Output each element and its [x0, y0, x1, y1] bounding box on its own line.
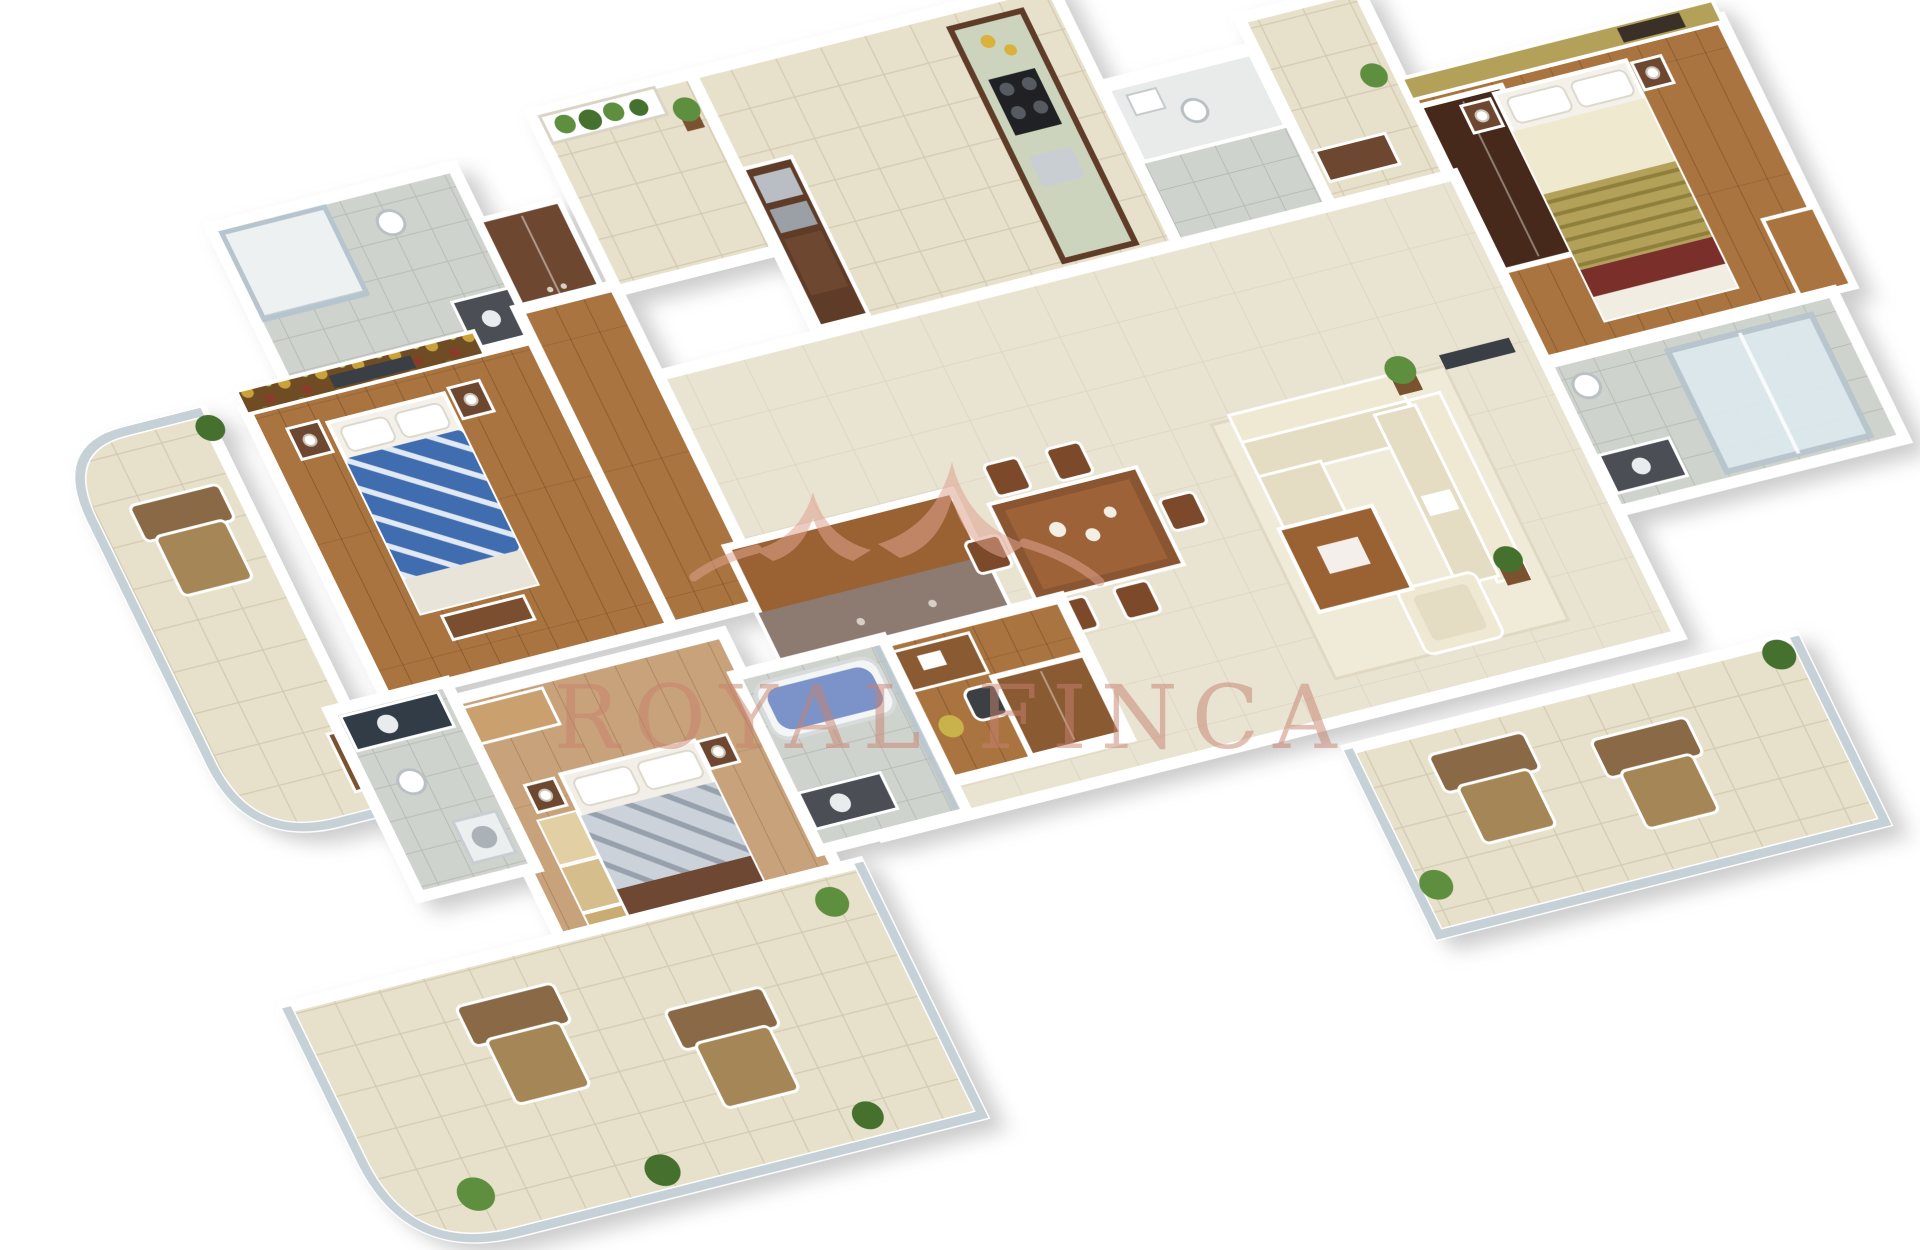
watermark-text: ROYAL FINCA — [553, 666, 1350, 769]
terrace-left-floor — [287, 863, 983, 1250]
floor-plan-svg: ROYAL FINCA — [0, 0, 1920, 1250]
floor-plan-render: ROYAL FINCA — [0, 0, 1920, 1250]
apartment-plan — [0, 0, 1920, 1250]
terrace-left — [287, 863, 983, 1250]
